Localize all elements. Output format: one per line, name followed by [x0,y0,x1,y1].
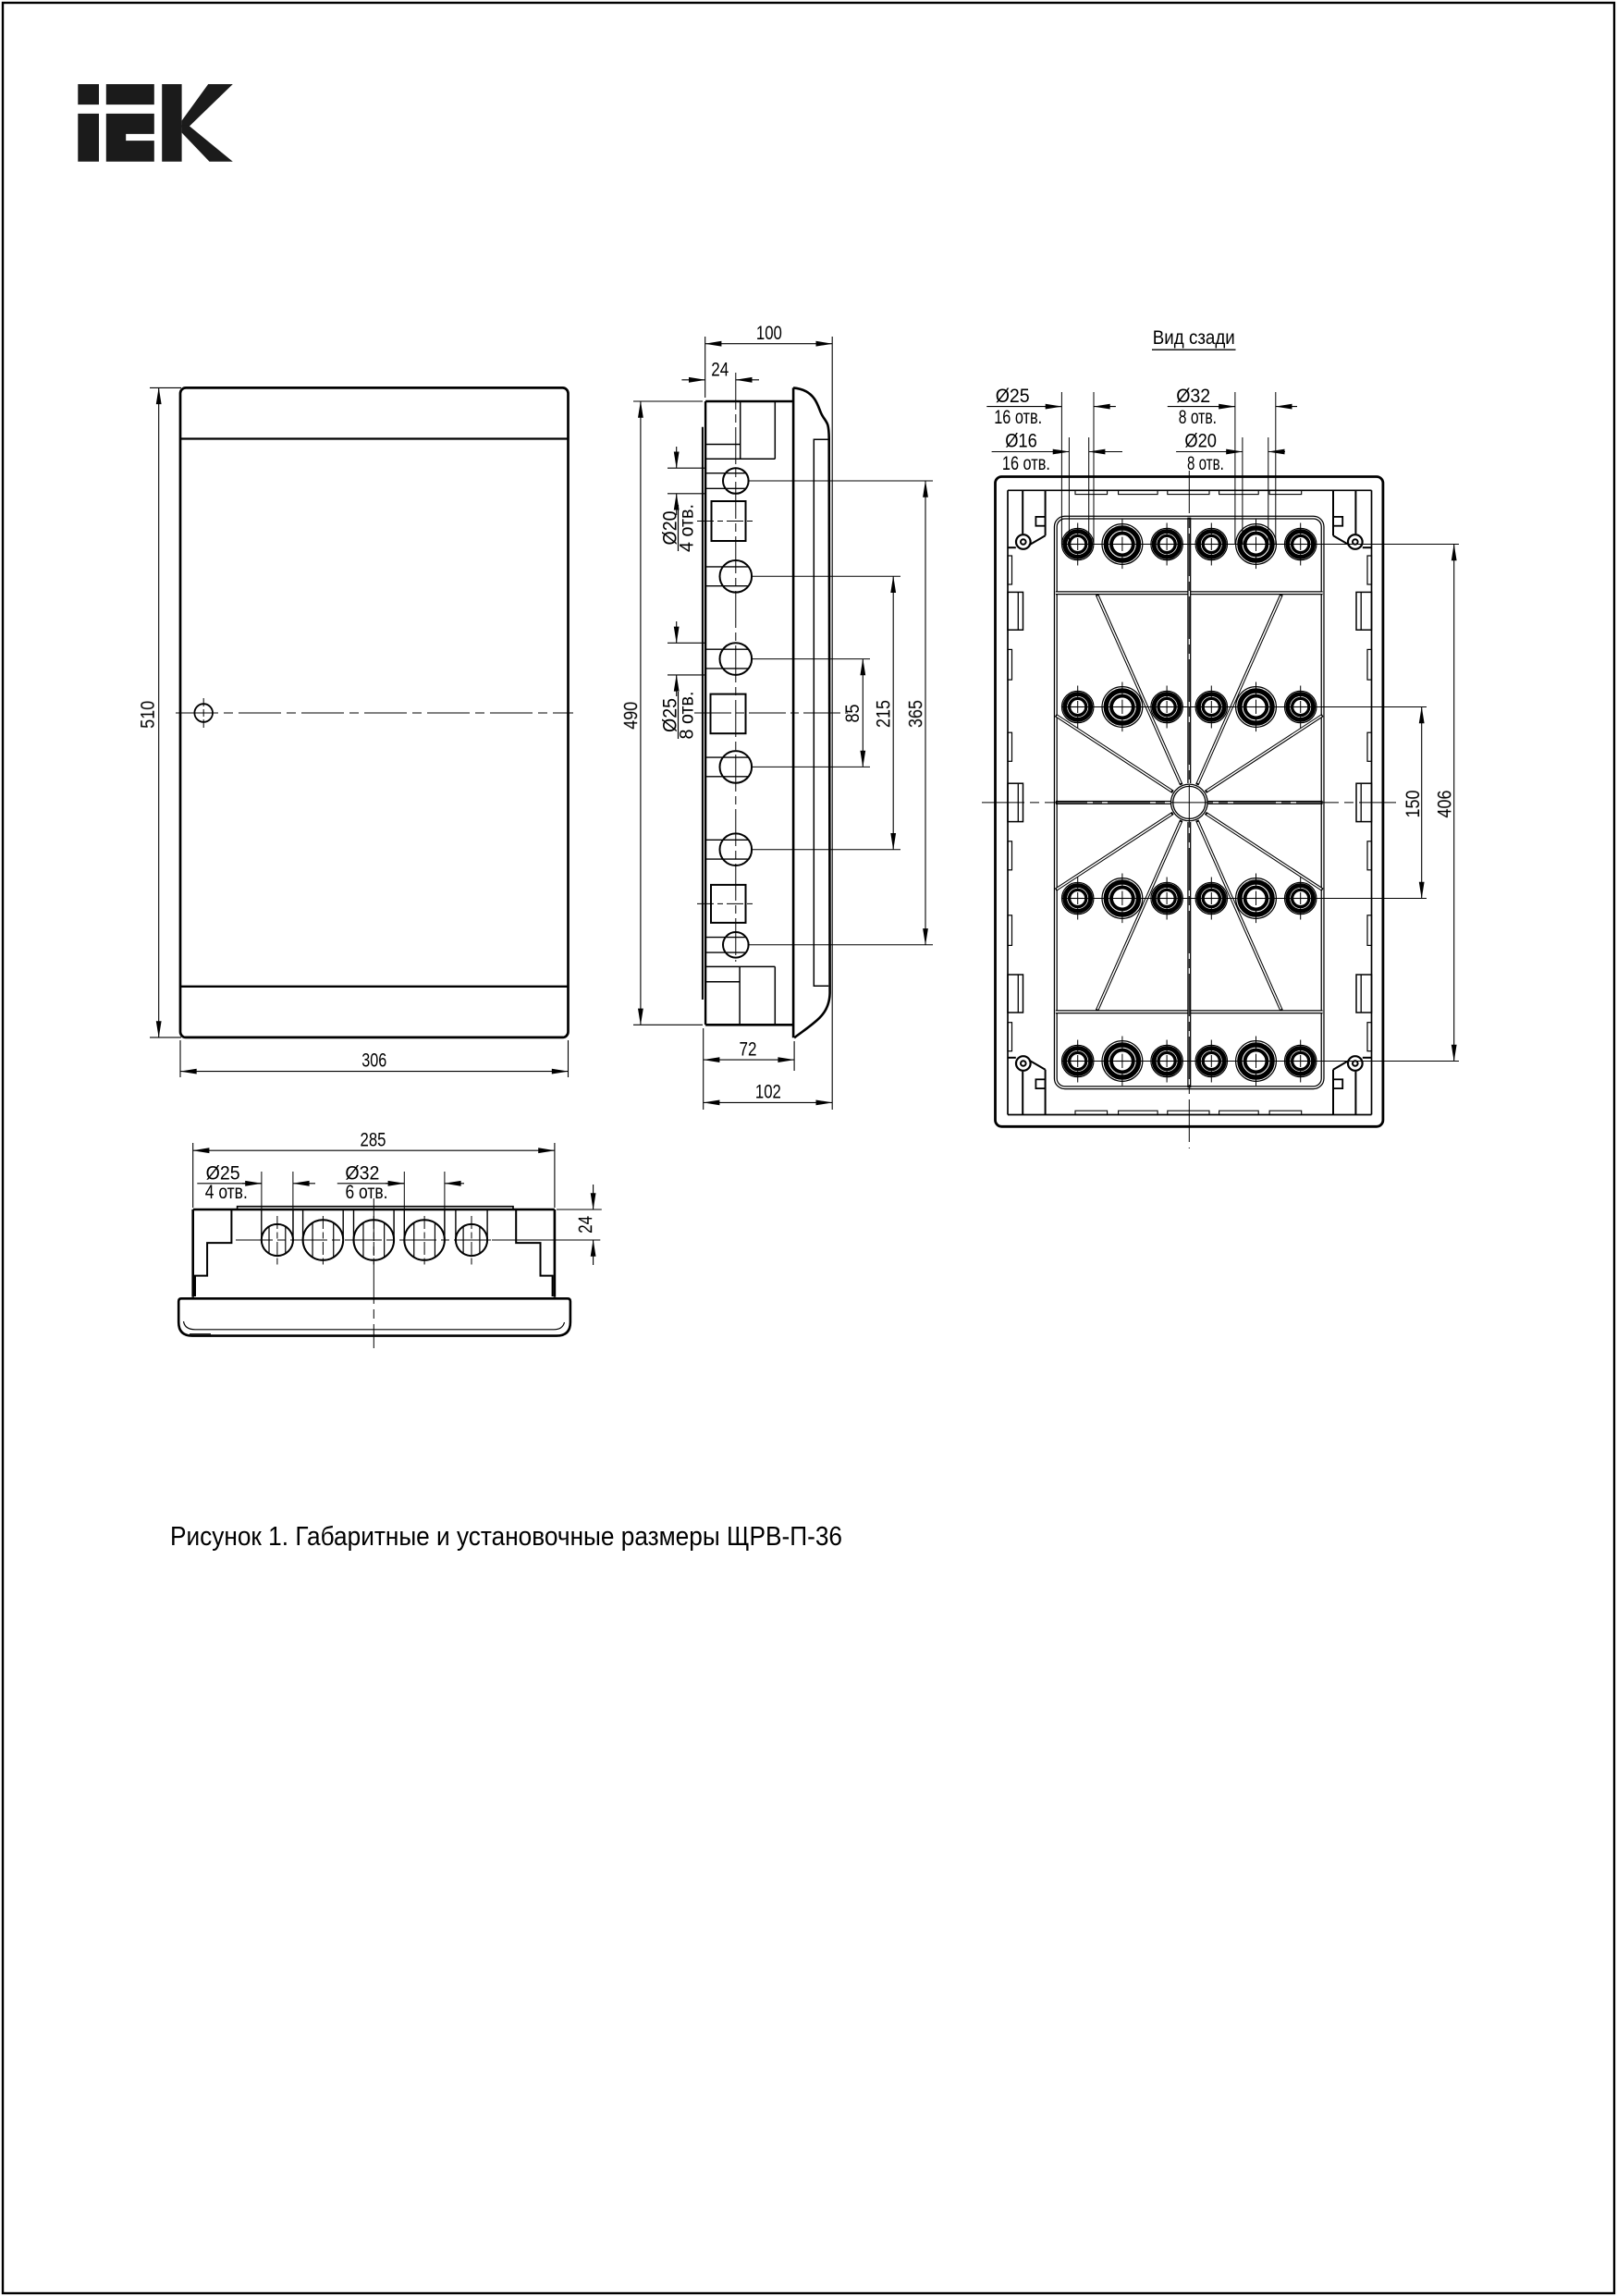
svg-text:490: 490 [619,702,642,730]
svg-text:24: 24 [574,1216,596,1234]
svg-text:Ø16: Ø16 [1005,430,1037,452]
svg-text:215: 215 [872,700,894,728]
svg-text:8 отв.: 8 отв. [1179,406,1217,428]
svg-text:Рисунок 1. Габаритные и устано: Рисунок 1. Габаритные и установочные раз… [170,1522,842,1552]
svg-text:8 отв.: 8 отв. [1187,452,1224,474]
svg-text:6 отв.: 6 отв. [346,1181,388,1203]
svg-text:100: 100 [756,322,782,344]
svg-text:Вид сзади: Вид сзади [1153,326,1235,349]
svg-text:365: 365 [904,700,926,728]
svg-text:8 отв.: 8 отв. [676,692,698,740]
svg-text:72: 72 [740,1038,757,1061]
svg-text:4 отв.: 4 отв. [676,504,698,552]
svg-text:16 отв.: 16 отв. [994,406,1042,428]
svg-text:Ø32: Ø32 [1176,385,1210,407]
svg-text:24: 24 [711,359,729,381]
svg-text:85: 85 [841,704,864,722]
svg-text:102: 102 [755,1081,781,1103]
svg-text:150: 150 [1402,790,1424,817]
svg-text:285: 285 [361,1129,386,1151]
svg-text:Ø25: Ø25 [996,385,1030,407]
svg-text:4 отв.: 4 отв. [205,1181,248,1203]
svg-text:406: 406 [1433,790,1455,817]
svg-text:16 отв.: 16 отв. [1002,452,1050,474]
svg-text:510: 510 [137,701,159,729]
svg-text:Ø20: Ø20 [1184,430,1217,452]
svg-text:306: 306 [361,1050,386,1072]
